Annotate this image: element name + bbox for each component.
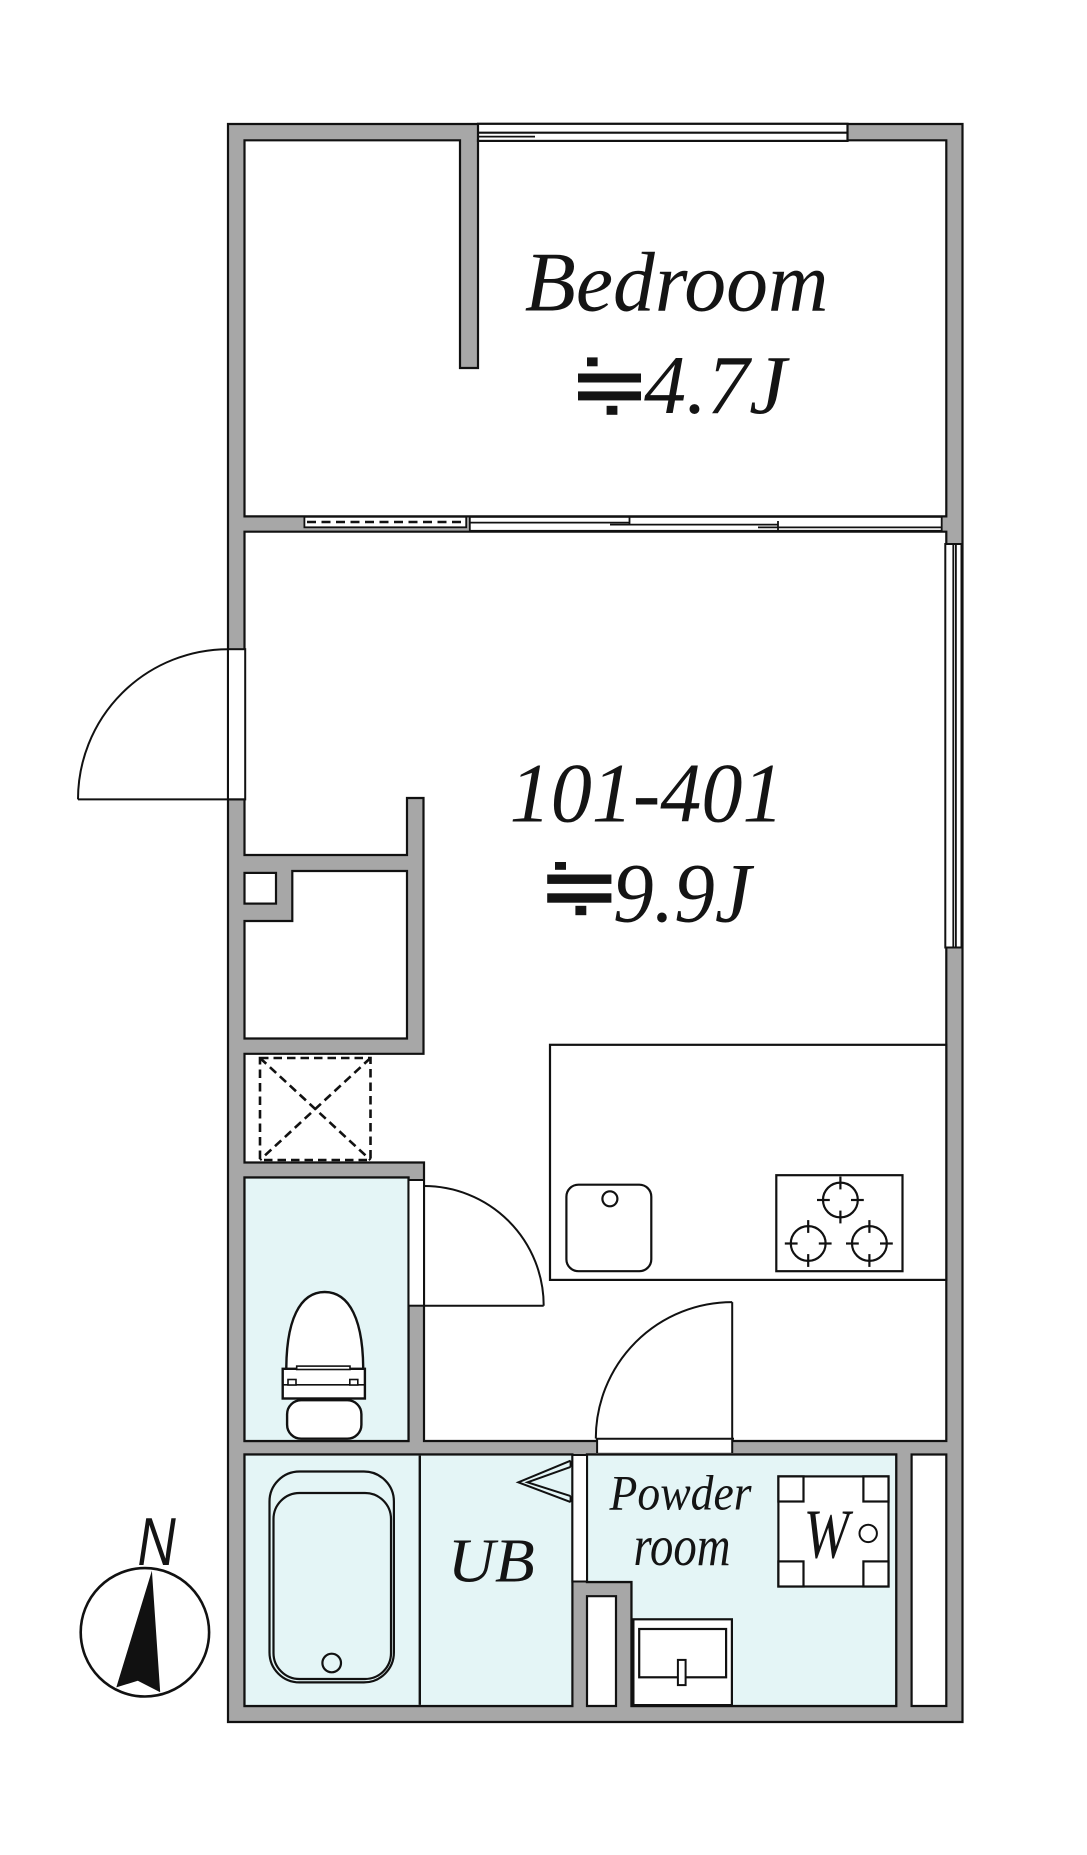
svg-text:UB: UB	[448, 1528, 535, 1596]
svg-text:101-401: 101-401	[510, 746, 784, 840]
svg-text:4.7J: 4.7J	[644, 339, 790, 432]
svg-text:W: W	[804, 1495, 854, 1573]
svg-text:9.9J: 9.9J	[613, 846, 755, 940]
svg-text:Bedroom: Bedroom	[525, 237, 829, 330]
svg-text:N: N	[138, 1504, 177, 1580]
svg-text:Powder: Powder	[609, 1466, 753, 1521]
svg-text:room: room	[634, 1515, 731, 1578]
